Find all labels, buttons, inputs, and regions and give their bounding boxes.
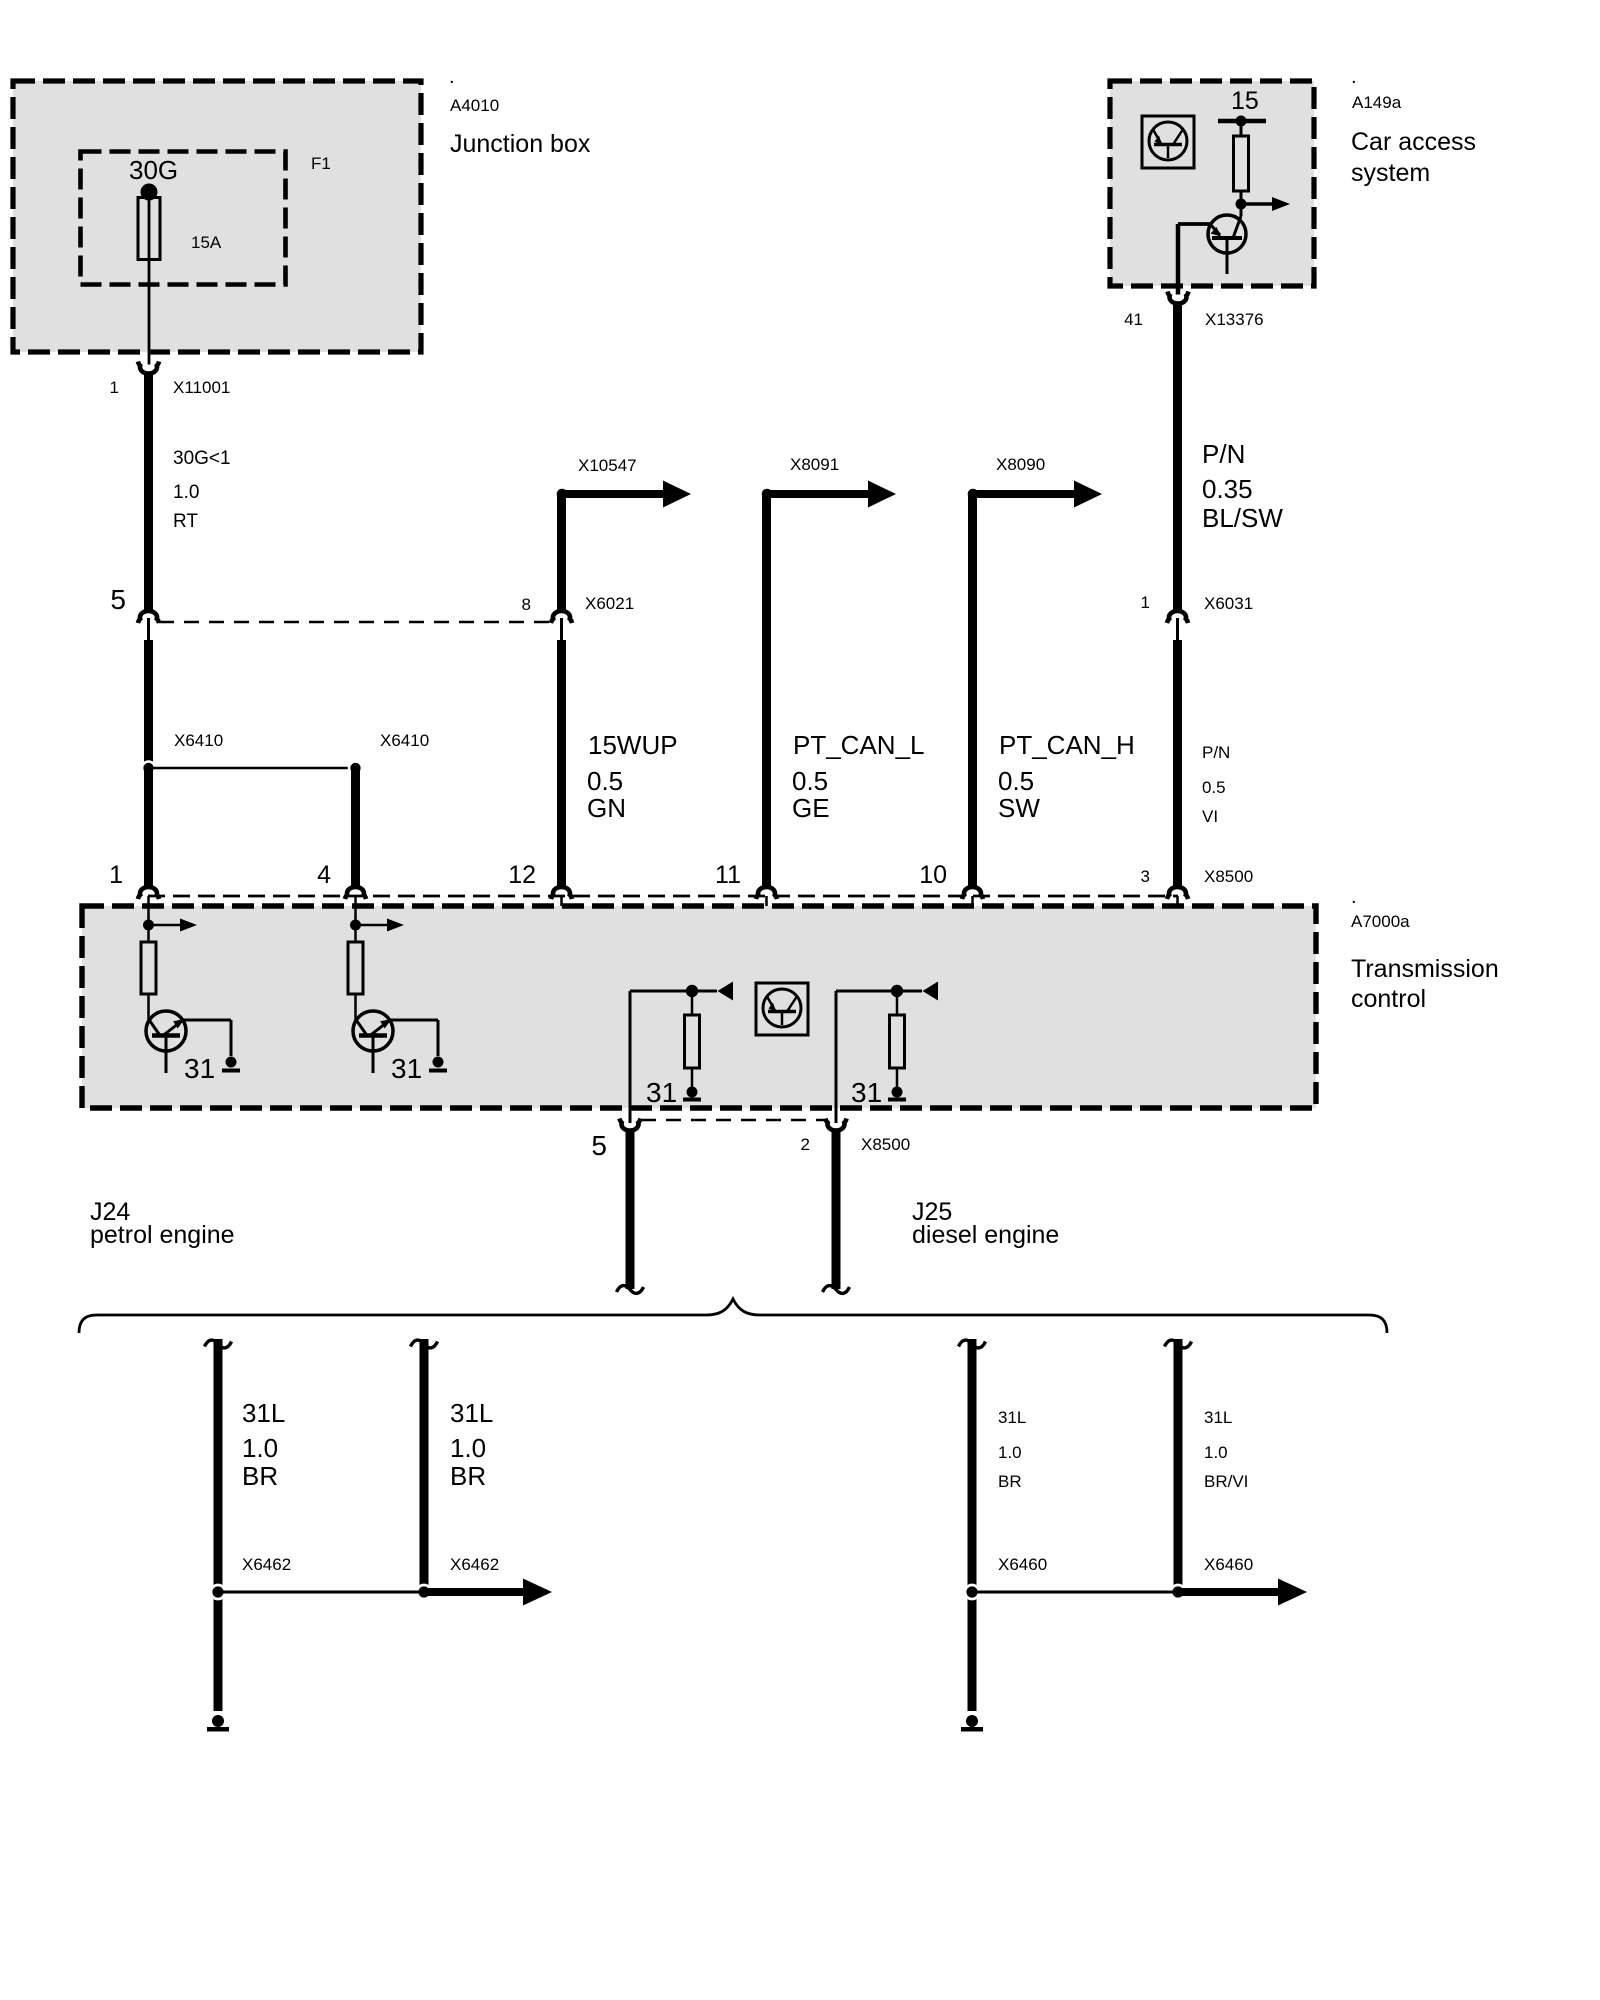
svg-text:31: 31 [391, 1053, 422, 1084]
svg-text:1: 1 [109, 861, 123, 889]
svg-text:8: 8 [522, 595, 531, 614]
svg-text:30G: 30G [129, 155, 178, 185]
svg-text:VI: VI [1202, 807, 1218, 826]
svg-text:5: 5 [591, 1130, 607, 1161]
svg-text:X6410: X6410 [174, 731, 223, 750]
svg-text:BR: BR [242, 1461, 278, 1491]
svg-text:31: 31 [184, 1053, 215, 1084]
svg-text:BL/SW: BL/SW [1202, 503, 1283, 533]
svg-text:F1: F1 [311, 154, 331, 173]
svg-text:P/N: P/N [1202, 439, 1245, 469]
svg-text:BR/VI: BR/VI [1204, 1472, 1248, 1491]
svg-text:A7000a: A7000a [1351, 912, 1410, 931]
svg-text:Transmission: Transmission [1351, 955, 1499, 983]
svg-text:PT_CAN_L: PT_CAN_L [793, 730, 925, 760]
svg-text:SW: SW [998, 793, 1040, 823]
svg-text:P/N: P/N [1202, 743, 1230, 762]
svg-text:1.0: 1.0 [450, 1433, 486, 1463]
svg-text:GN: GN [587, 793, 626, 823]
svg-text:5: 5 [110, 584, 126, 615]
svg-text:X6462: X6462 [242, 1555, 291, 1574]
svg-text:A4010: A4010 [450, 96, 499, 115]
svg-text:2: 2 [801, 1135, 810, 1154]
svg-text:X8091: X8091 [790, 455, 839, 474]
svg-text:BR: BR [998, 1472, 1022, 1491]
svg-text:1.0: 1.0 [242, 1433, 278, 1463]
svg-text:X11001: X11001 [173, 378, 230, 397]
svg-text:X6460: X6460 [1204, 1555, 1253, 1574]
svg-text:GE: GE [792, 793, 830, 823]
svg-text:31L: 31L [450, 1398, 493, 1428]
svg-text:system: system [1351, 159, 1430, 187]
svg-text:1.0: 1.0 [1204, 1443, 1228, 1462]
svg-text:4: 4 [317, 861, 331, 889]
svg-text:X6410: X6410 [380, 731, 429, 750]
svg-text:15WUP: 15WUP [588, 730, 678, 760]
svg-text:PT_CAN_H: PT_CAN_H [999, 730, 1135, 760]
svg-text:X8500: X8500 [1204, 867, 1253, 886]
svg-text:31: 31 [646, 1077, 677, 1108]
svg-text:31L: 31L [1204, 1408, 1232, 1427]
svg-text:X6460: X6460 [998, 1555, 1047, 1574]
svg-text:RT: RT [173, 511, 198, 532]
svg-text:10: 10 [919, 861, 947, 889]
svg-text:X8500: X8500 [861, 1135, 910, 1154]
svg-text:0.35: 0.35 [1202, 474, 1253, 504]
svg-text:31L: 31L [998, 1408, 1026, 1427]
svg-text:15: 15 [1231, 87, 1259, 115]
svg-text:1: 1 [110, 378, 119, 397]
svg-text:.: . [449, 66, 455, 88]
svg-text:X6031: X6031 [1204, 594, 1253, 613]
svg-text:0.5: 0.5 [792, 766, 828, 796]
svg-text:11: 11 [715, 861, 741, 889]
svg-text:X13376: X13376 [1205, 310, 1264, 329]
svg-text:41: 41 [1124, 310, 1143, 329]
svg-text:BR: BR [450, 1461, 486, 1491]
svg-text:1: 1 [1141, 593, 1150, 612]
svg-text:0.5: 0.5 [587, 766, 623, 796]
svg-text:X6021: X6021 [585, 594, 634, 613]
svg-text:0.5: 0.5 [998, 766, 1034, 796]
svg-text:X6462: X6462 [450, 1555, 499, 1574]
svg-text:0.5: 0.5 [1202, 778, 1226, 797]
svg-text:control: control [1351, 985, 1426, 1013]
svg-text:12: 12 [508, 861, 536, 889]
svg-text:15A: 15A [191, 233, 222, 252]
svg-text:petrol engine: petrol engine [90, 1221, 235, 1249]
svg-text:.: . [1351, 886, 1357, 908]
svg-text:31L: 31L [242, 1398, 285, 1428]
svg-text:3: 3 [1141, 867, 1150, 886]
svg-text:X10547: X10547 [578, 456, 637, 475]
svg-text:X8090: X8090 [996, 455, 1045, 474]
svg-text:A149a: A149a [1352, 93, 1402, 112]
svg-text:30G<1: 30G<1 [173, 448, 231, 469]
svg-text:diesel engine: diesel engine [912, 1221, 1059, 1249]
svg-text:31: 31 [851, 1077, 882, 1108]
svg-text:.: . [1351, 66, 1357, 88]
svg-text:1.0: 1.0 [173, 482, 199, 503]
svg-text:Car access: Car access [1351, 128, 1476, 156]
svg-text:1.0: 1.0 [998, 1443, 1022, 1462]
svg-text:Junction box: Junction box [450, 130, 591, 158]
